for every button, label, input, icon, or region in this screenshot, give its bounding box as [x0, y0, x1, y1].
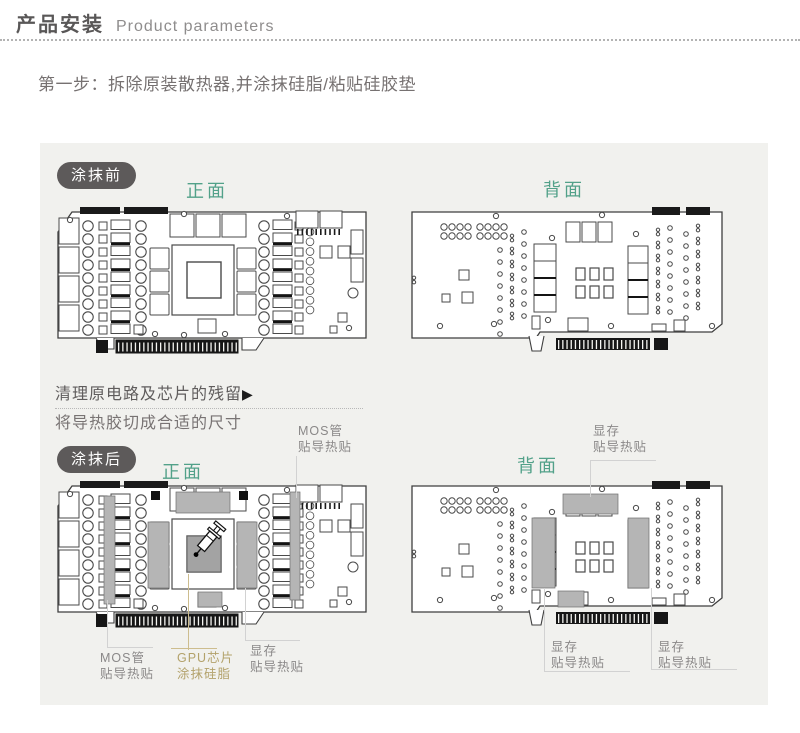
step-instruction: 第一步：拆除原装散热器,并涂抹硅脂/粘贴硅胶垫	[38, 70, 416, 95]
annotation-line	[245, 588, 246, 641]
annotation-back-mem-bottom-right: 显存 贴导热贴	[658, 639, 712, 671]
annotation-line	[651, 588, 652, 670]
annotation-line	[544, 671, 630, 672]
annotation-front-mos-bottom: MOS管 贴导热贴	[100, 650, 154, 682]
annotation-line	[590, 460, 591, 497]
page-subtitle: Product parameters	[116, 18, 275, 36]
note-cut-pad: 将导热胶切成合适的尺寸	[55, 409, 242, 433]
annotation-front-mem-bottom: 显存 贴导热贴	[250, 643, 304, 675]
annotation-line	[245, 640, 300, 641]
page-header: 产品安装 Product parameters	[16, 8, 275, 37]
annotation-line	[590, 460, 656, 461]
annotation-back-mem-bottom-left: 显存 贴导热贴	[551, 639, 605, 671]
note-clean-residue: 清理原电路及芯片的残留▶	[55, 380, 363, 409]
annotation-line	[107, 600, 108, 648]
annotation-front-gpu-bottom: GPU芯片 涂抹硅脂	[177, 650, 234, 682]
pcb-back-after-diagram	[406, 472, 726, 640]
right-arrow-icon: ▶	[242, 386, 254, 402]
annotation-line	[107, 647, 153, 648]
product-install-page: { "header": { "title": "产品安装", "subtitle…	[0, 0, 800, 733]
pcb-front-before-diagram	[52, 198, 372, 366]
annotation-front-mos-top: MOS管 贴导热贴	[298, 423, 352, 455]
annotation-line	[544, 588, 545, 672]
pcb-back-before-diagram	[406, 198, 726, 366]
annotation-line-gold	[188, 574, 189, 650]
dotted-divider	[0, 39, 800, 41]
annotation-line	[296, 456, 297, 498]
pcb-front-after-diagram	[52, 472, 372, 640]
annotation-back-mem-top: 显存 贴导热贴	[593, 423, 647, 455]
annotation-line-gold	[171, 648, 217, 649]
before-badge: 涂抹前	[57, 162, 136, 189]
after-badge: 涂抹后	[57, 446, 136, 473]
page-title: 产品安装	[16, 8, 104, 37]
